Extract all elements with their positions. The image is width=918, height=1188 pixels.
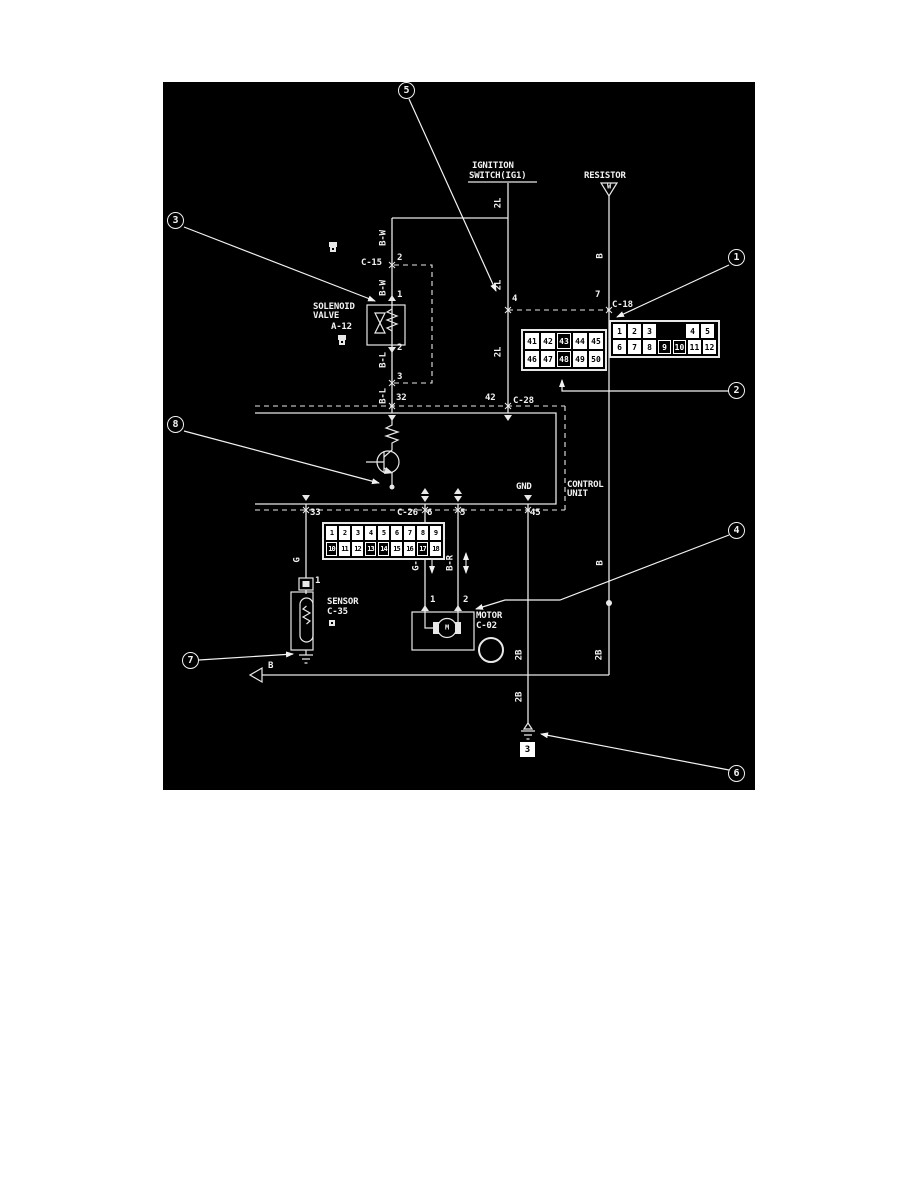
- pin-cell: 49: [573, 351, 587, 367]
- pin-cell: 17: [417, 542, 428, 556]
- wire-label-2b-b: 2B: [596, 650, 605, 660]
- motor-pin1-arrow: [421, 605, 429, 611]
- wire-label-bl-a: B-L: [380, 352, 389, 368]
- pin-cell: 2: [628, 324, 641, 338]
- connector-c02-icon: [478, 637, 504, 663]
- pin-cell: 50: [589, 351, 603, 367]
- c15-connector-label: C-15: [361, 259, 382, 268]
- pin-cell: 43: [557, 333, 571, 349]
- callout-5: 5: [398, 82, 415, 99]
- leader-5: [409, 99, 496, 291]
- sensor-ground-icon: [299, 650, 313, 663]
- solenoid-valve-label-2: VALVE: [313, 312, 339, 321]
- valve-triangle-bottom: [375, 323, 385, 333]
- offpage-triangle-icon: [250, 668, 262, 682]
- motor-pin2-arrow: [454, 605, 462, 611]
- leader-3: [184, 227, 375, 301]
- connector-c18: 123456789101112: [609, 320, 720, 358]
- scanned-page: IGNITION SWITCH(IG1) RESISTOR W SOLENOID…: [0, 0, 918, 1188]
- pin-cu-42: 42: [485, 394, 495, 403]
- main-ground-cap: [524, 723, 532, 729]
- connector-row: 123456789: [325, 525, 442, 541]
- pin42-arrow: [504, 415, 512, 421]
- pin6-arrow-up: [421, 488, 429, 494]
- pin-cell: 3: [643, 324, 656, 338]
- connector-row: 4647484950: [524, 350, 604, 368]
- pin-cell: 2: [339, 526, 350, 540]
- leader-8: [184, 431, 379, 483]
- pin-cell: 11: [688, 340, 701, 354]
- pin-cell: 9: [430, 526, 441, 540]
- pin-cell: 5: [378, 526, 389, 540]
- wire-label-bw-a: B-W: [380, 230, 389, 246]
- emitter-dot: [390, 485, 395, 490]
- pin-cu-32: 32: [396, 394, 406, 403]
- pin6-arrow-down: [421, 496, 429, 502]
- pin-cell: 1: [326, 526, 337, 540]
- connector-c35-icon: [329, 620, 335, 626]
- pin-c18-7: 7: [595, 291, 600, 300]
- connector-tab: [329, 242, 337, 247]
- pin-cu-6: 6: [427, 509, 432, 518]
- pin-cell: 45: [589, 333, 603, 349]
- junction-dot: [606, 600, 612, 606]
- component-symbols: [250, 183, 617, 739]
- pin-cell: [658, 324, 684, 338]
- pin-cell: 12: [703, 340, 716, 354]
- wire-label-bw-b: B-W: [380, 280, 389, 296]
- c35-connector-label: C-35: [327, 608, 348, 617]
- callout-8: 8: [167, 416, 184, 433]
- pin5-arrow-up: [454, 488, 462, 494]
- c15-dashed-loop: [394, 265, 432, 383]
- callout-6: 6: [728, 765, 745, 782]
- valve-triangle-top: [375, 313, 385, 323]
- connector-c26: 123456789101112131415161718: [322, 522, 445, 560]
- pin-motor-2: 2: [463, 596, 468, 605]
- pin32-arrow: [388, 415, 396, 421]
- wiring-diagram: IGNITION SWITCH(IG1) RESISTOR W SOLENOID…: [163, 82, 755, 790]
- connector-a12-icon: [339, 339, 345, 345]
- pin-cell: 10: [673, 340, 686, 354]
- pin-cell: 6: [613, 340, 626, 354]
- leader-6: [541, 734, 729, 770]
- wire-label-2l-b: 2L: [495, 280, 504, 290]
- callout-2: 2: [728, 382, 745, 399]
- leader-2: [562, 380, 729, 391]
- pin-c15-2: 2: [397, 254, 402, 263]
- leader-7: [199, 654, 293, 660]
- pin-cell: 47: [541, 351, 555, 367]
- motor-label: MOTOR: [476, 612, 502, 621]
- connector-c15-icon: [330, 246, 336, 252]
- pin-c18-4: 4: [512, 295, 517, 304]
- leader-4: [476, 535, 729, 609]
- sensor-pin-icon-fill: [303, 581, 310, 587]
- pin-cell: 8: [643, 340, 656, 354]
- pin-cell: 7: [628, 340, 641, 354]
- pin-cell: 48: [557, 351, 571, 367]
- c26-connector-label: C-26: [397, 509, 418, 518]
- control-unit-box: [255, 413, 556, 504]
- pin33-arrow: [302, 495, 310, 501]
- resistor-label: RESISTOR: [584, 172, 626, 181]
- callout-3: 3: [167, 212, 184, 229]
- valve-pin2-arrow: [388, 347, 396, 353]
- pin-c15-3: 3: [397, 373, 402, 382]
- callout-4: 4: [728, 522, 745, 539]
- resistor-symbol-letter: W: [607, 184, 611, 191]
- pin-cell: 7: [404, 526, 415, 540]
- ignition-switch-label-1: IGNITION: [472, 162, 514, 171]
- pin-cell: 1: [613, 324, 626, 338]
- motor-brush-right: [455, 622, 461, 634]
- pin-cell: 15: [391, 542, 402, 556]
- pin-cell: 4: [686, 324, 699, 338]
- motor-symbol-letter: M: [445, 625, 449, 632]
- pin-cu-5: 5: [460, 509, 465, 518]
- gnd-label: GND: [516, 483, 532, 492]
- c28-connector-label: C-28: [513, 397, 534, 406]
- pin-cell: 3: [352, 526, 363, 540]
- a12-connector-label: A-12: [331, 323, 352, 332]
- connector-row: 6789101112: [612, 339, 717, 355]
- control-unit-label-2: UNIT: [567, 490, 588, 499]
- transistor-emitter-arrow: [384, 467, 393, 474]
- pin-cell: 46: [525, 351, 539, 367]
- wire-label-2b-c: 2B: [516, 692, 525, 702]
- pin-cell: 4: [365, 526, 376, 540]
- callout-7: 7: [182, 652, 199, 669]
- connector-c28: 41424344454647484950: [521, 329, 607, 371]
- leader-1: [617, 265, 729, 317]
- pin-cu-33: 33: [310, 509, 320, 518]
- wire-label-br: B-R: [447, 555, 456, 571]
- pin-cell: 5: [701, 324, 714, 338]
- pin-valve-1: 1: [397, 291, 402, 300]
- callout-1: 1: [728, 249, 745, 266]
- pin-cell: 14: [378, 542, 389, 556]
- pin-cell: 6: [391, 526, 402, 540]
- sensor-zigzag: [303, 606, 310, 624]
- pin-cell: 10: [326, 542, 337, 556]
- ignition-switch-label-2: SWITCH(IG1): [469, 172, 526, 181]
- solenoid-valve-box: [367, 305, 405, 345]
- pin5-arrow-down: [454, 496, 462, 502]
- callout-leaders: [184, 99, 729, 770]
- pin-cell: 12: [352, 542, 363, 556]
- wire-label-bl-b: B-L: [380, 388, 389, 404]
- c18-connector-label: C-18: [612, 301, 633, 310]
- c02-connector-label: C-02: [476, 622, 497, 631]
- wire-label-b-a: B: [597, 253, 606, 258]
- gnd-pin-arrow: [524, 495, 532, 501]
- wire-label-2b-a: 2B: [516, 650, 525, 660]
- pin-cell: 13: [365, 542, 376, 556]
- pin-cell: 16: [404, 542, 415, 556]
- wire-label-2l-c: 2L: [495, 347, 504, 357]
- wire-label-2l-a: 2L: [495, 198, 504, 208]
- pin-sensor-1: 1: [315, 577, 320, 586]
- motor-box: [412, 612, 474, 650]
- pin-valve-2: 2: [397, 344, 402, 353]
- pin-cell: 18: [430, 542, 441, 556]
- pin-cell: 11: [339, 542, 350, 556]
- connector-tab: [338, 335, 346, 340]
- connector-row: 12345: [612, 323, 717, 339]
- motor-brush-left: [433, 622, 439, 634]
- pin-cell: 41: [525, 333, 539, 349]
- pin-cu-45: 45: [530, 509, 540, 518]
- main-ground-icon: [521, 731, 535, 739]
- valve-pin1-arrow: [388, 295, 396, 301]
- ground-ref-box: 3: [520, 742, 535, 757]
- wiring-lines: [163, 82, 755, 790]
- wire-label-g: G: [294, 557, 303, 562]
- pin-cell: 8: [417, 526, 428, 540]
- sensor-capsule: [300, 598, 313, 642]
- pin-cell: 9: [658, 340, 671, 354]
- sensor-label: SENSOR: [327, 598, 358, 607]
- connector-row: 4142434445: [524, 332, 604, 350]
- wire-label-b-b: B: [597, 560, 606, 565]
- pin-cell: 42: [541, 333, 555, 349]
- offpage-wire-label: B: [268, 662, 273, 671]
- pin-motor-1: 1: [430, 596, 435, 605]
- pin-cell: 44: [573, 333, 587, 349]
- connector-row: 101112131415161718: [325, 541, 442, 557]
